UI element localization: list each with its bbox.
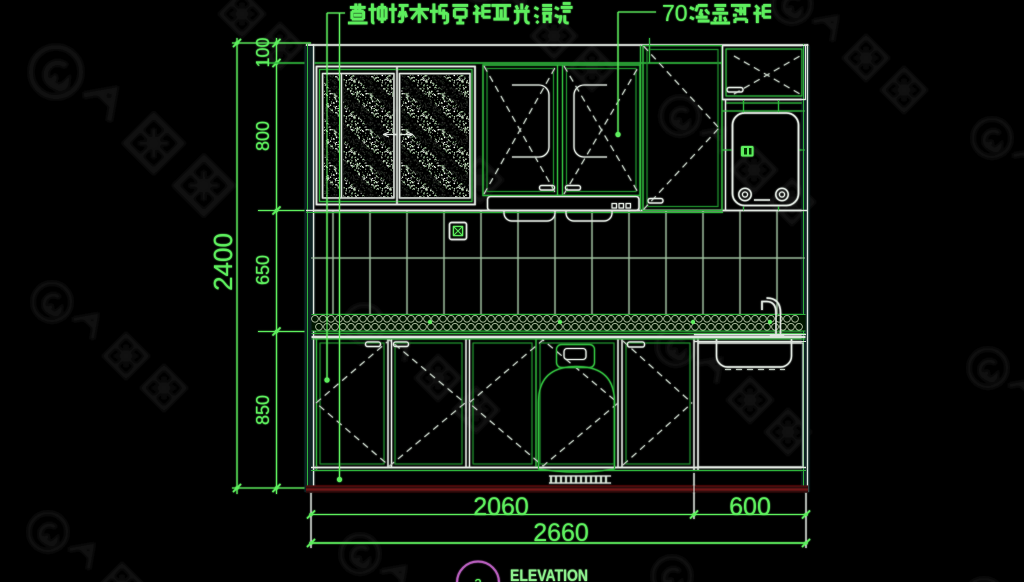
svg-text:2060: 2060 bbox=[473, 493, 529, 521]
svg-text:2: 2 bbox=[474, 576, 481, 582]
svg-text:100: 100 bbox=[253, 37, 273, 67]
svg-text:800: 800 bbox=[253, 121, 273, 151]
svg-text:2400: 2400 bbox=[208, 233, 238, 291]
svg-text:ELEVATION: ELEVATION bbox=[510, 567, 588, 582]
svg-text:650: 650 bbox=[253, 255, 273, 285]
svg-text:70: 70 bbox=[662, 0, 688, 26]
svg-text:850: 850 bbox=[253, 395, 273, 425]
svg-text:600: 600 bbox=[729, 493, 771, 521]
svg-text:2660: 2660 bbox=[533, 519, 589, 547]
